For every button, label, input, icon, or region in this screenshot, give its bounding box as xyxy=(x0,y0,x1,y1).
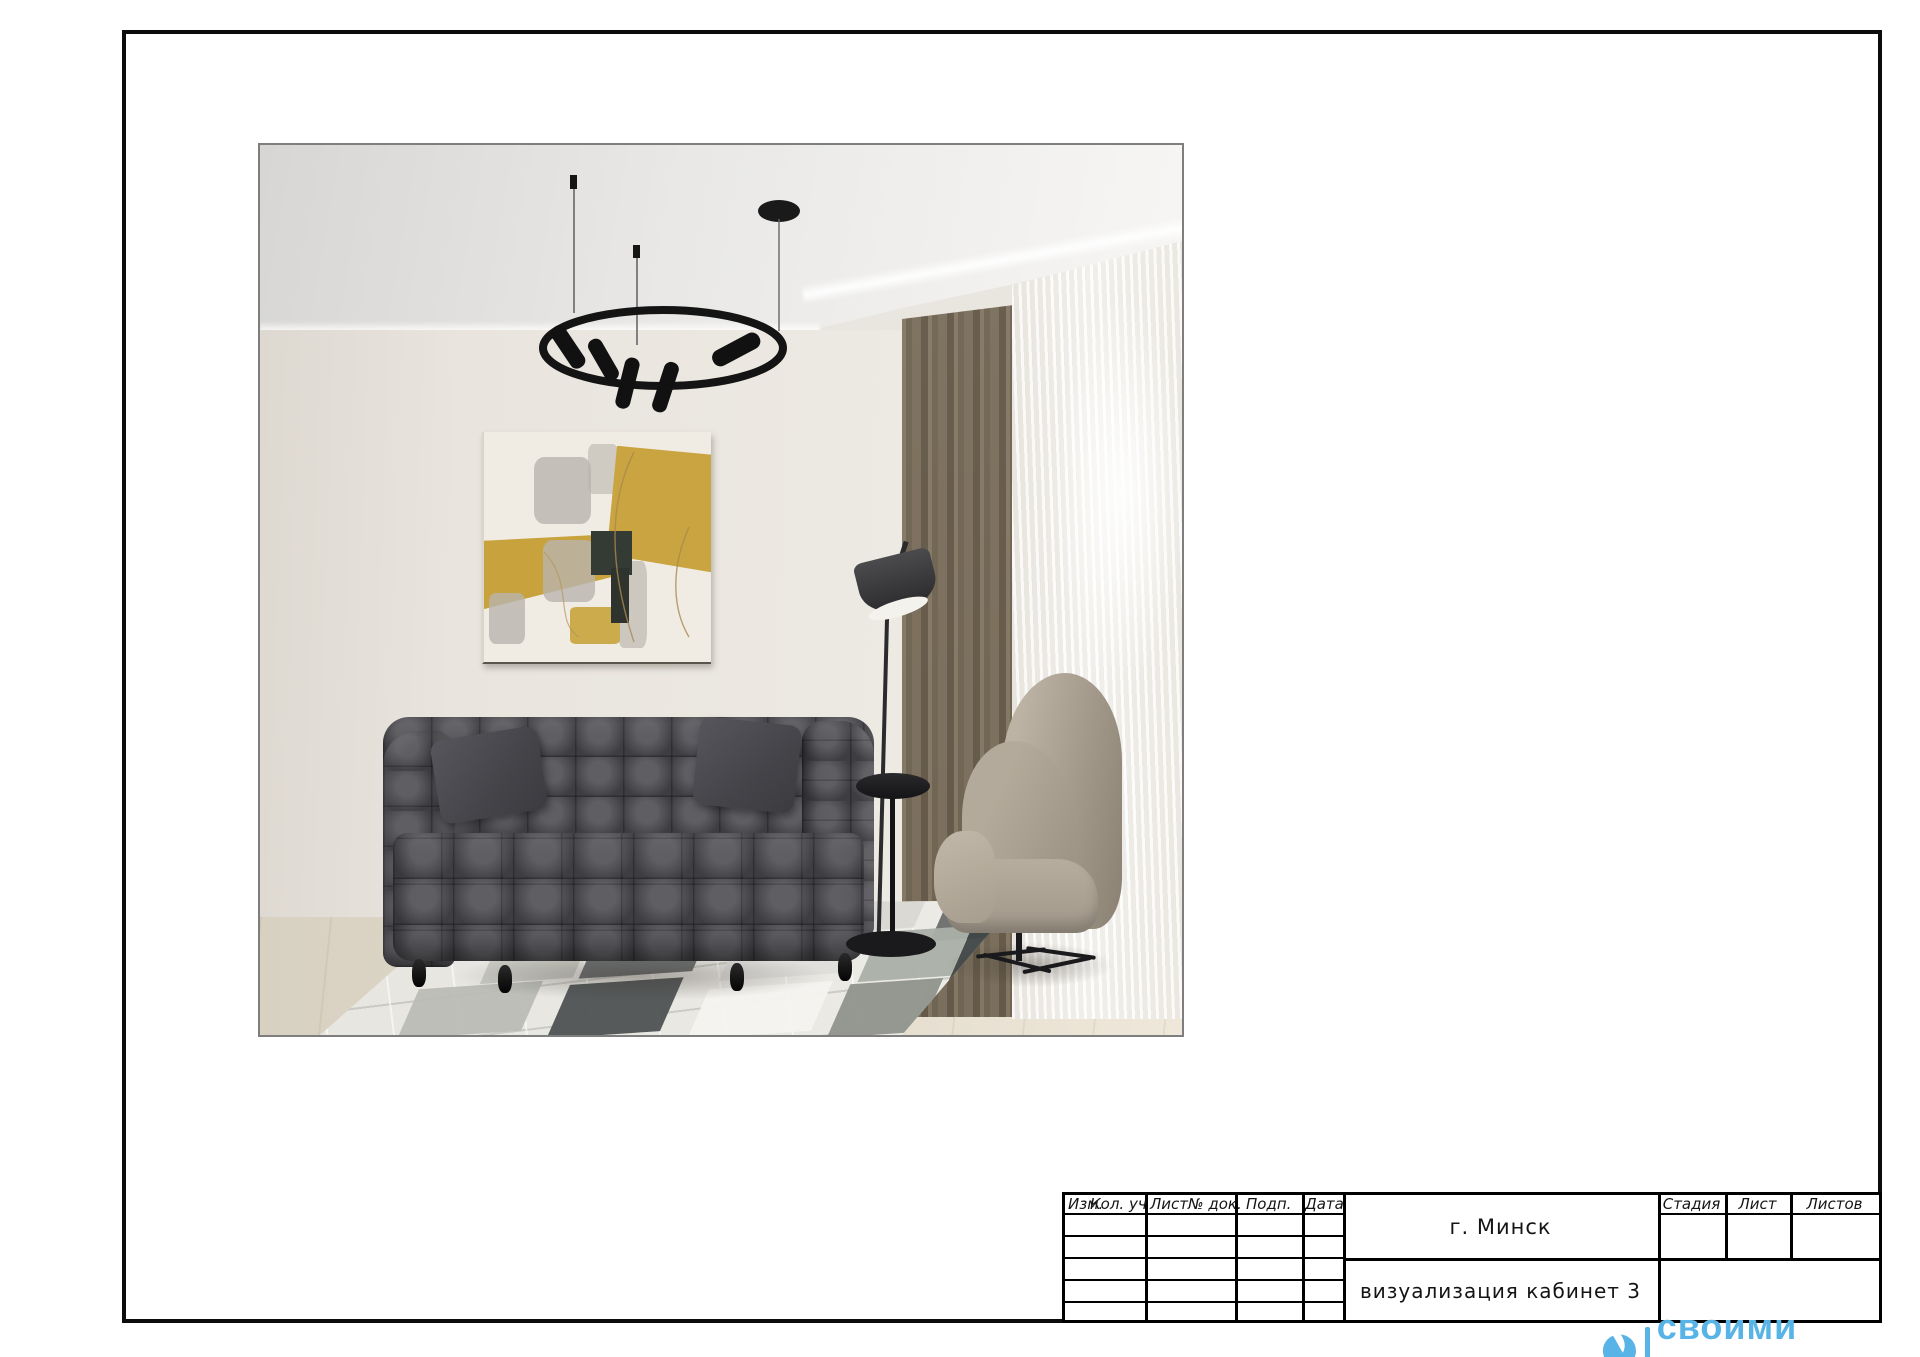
sofa-leg xyxy=(498,965,512,993)
tb-line xyxy=(1065,1279,1343,1281)
watermark-text: своими глазами xyxy=(1657,1304,1920,1357)
sofa-leg xyxy=(730,963,744,991)
sofa-seat xyxy=(393,833,864,961)
tb-city: г. Минск xyxy=(1343,1195,1658,1258)
side-table-stem xyxy=(890,793,895,943)
watermark: своими глазами xyxy=(1602,1304,1920,1357)
sofa-leg xyxy=(412,959,426,987)
tb-sheets-value xyxy=(1790,1215,1879,1258)
tb-col-podp: Подп. xyxy=(1246,1195,1291,1213)
tb-line xyxy=(1065,1235,1343,1237)
tb-col-list: Лист xyxy=(1150,1195,1188,1213)
sofa-leg xyxy=(838,953,852,981)
tb-col-kol: Кол. уч xyxy=(1090,1195,1147,1213)
abstract-painting xyxy=(482,432,711,664)
tb-col-sheet: Лист xyxy=(1725,1195,1790,1213)
tb-col-doc: № док. xyxy=(1188,1195,1242,1213)
interior-render xyxy=(258,143,1184,1037)
tb-col-data: Дата xyxy=(1305,1195,1344,1213)
tb-line xyxy=(1065,1257,1343,1259)
armchair-post xyxy=(1016,931,1022,961)
tb-col-sheets: Листов xyxy=(1790,1195,1879,1213)
tb-line xyxy=(1065,1213,1343,1215)
throw-pillow-right xyxy=(692,716,803,814)
throw-pillow-left xyxy=(429,725,549,825)
armchair-arm xyxy=(934,831,996,923)
side-table-top xyxy=(856,773,930,799)
tb-stage-value xyxy=(1658,1215,1725,1258)
painting-line-art xyxy=(484,432,711,662)
tb-line xyxy=(1065,1301,1343,1303)
watermark-logo-icon xyxy=(1602,1328,1640,1357)
watermark-divider xyxy=(1645,1327,1649,1357)
tb-sheet-value xyxy=(1725,1215,1790,1258)
tb-col-stage: Стадия xyxy=(1658,1195,1725,1213)
